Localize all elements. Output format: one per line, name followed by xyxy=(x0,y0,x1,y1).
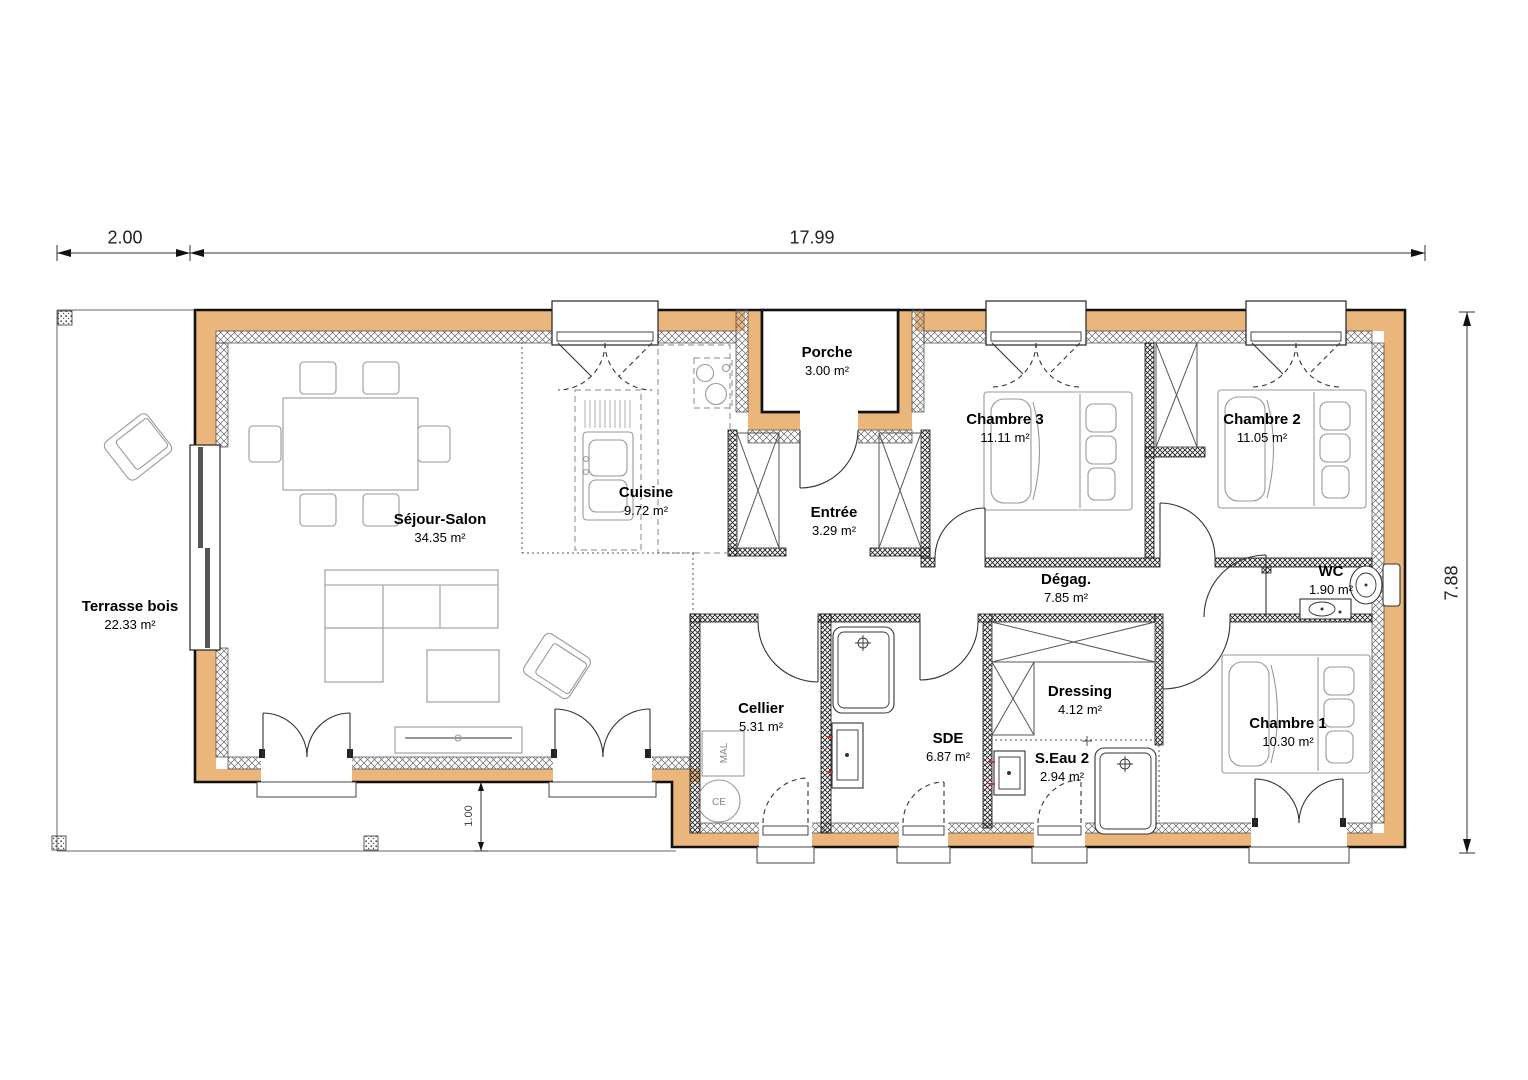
room-label-sde: SDE6.87 m² xyxy=(926,729,970,765)
coffee-table xyxy=(427,650,499,702)
room-label-degagement: Dégag.7.85 m² xyxy=(1041,570,1091,606)
room-label-wc: WC1.90 m² xyxy=(1309,562,1353,598)
room-label-chambre1: Chambre 110.30 m² xyxy=(1249,714,1327,750)
room-label-chambre3: Chambre 311.11 m² xyxy=(966,410,1044,446)
room-label-terrasse: Terrasse bois22.33 m² xyxy=(82,597,178,633)
svg-text:CE: CE xyxy=(712,797,726,808)
bed-chambre-2 xyxy=(1218,390,1366,508)
svg-text:MAL: MAL xyxy=(719,742,730,763)
shower-sde xyxy=(833,627,894,713)
vanity-sde xyxy=(827,723,863,788)
vanity-seau2 xyxy=(989,751,1025,795)
floor-plan-drawing: MAL CE xyxy=(0,0,1528,1080)
kitchen-counter xyxy=(658,345,732,553)
armchair-salon xyxy=(521,631,592,701)
armchair-terrace xyxy=(102,411,174,482)
room-label-entree: Entrée3.29 m² xyxy=(811,503,858,539)
dimension-terrace-width: 2.00 xyxy=(107,228,142,249)
washbasin-wc xyxy=(1300,599,1351,619)
washing-machine: MAL xyxy=(702,731,744,776)
room-label-sejour: Séjour-Salon34.35 m² xyxy=(394,510,487,546)
room-label-seau2: S.Eau 22.94 m² xyxy=(1035,749,1089,785)
dining-set xyxy=(249,362,450,526)
room-label-dressing: Dressing4.12 m² xyxy=(1048,682,1112,718)
floor-plan: MAL CE xyxy=(0,0,1528,1080)
room-label-cuisine: Cuisine9.72 m² xyxy=(619,483,673,519)
shower-seau2 xyxy=(1095,748,1156,834)
dimension-terrace-depth: 1.00 xyxy=(463,805,475,826)
kitchen-island xyxy=(575,390,641,550)
dimension-house-height: 7.88 xyxy=(1442,565,1463,600)
room-label-porche: Porche3.00 m² xyxy=(802,343,853,379)
dimension-house-width: 17.99 xyxy=(789,228,834,249)
water-heater: CE xyxy=(698,780,740,822)
room-label-chambre2: Chambre 211.05 m² xyxy=(1223,410,1301,446)
tv-console xyxy=(395,727,522,753)
room-label-cellier: Cellier5.31 m² xyxy=(738,699,784,735)
toilet-wc xyxy=(1350,564,1400,606)
